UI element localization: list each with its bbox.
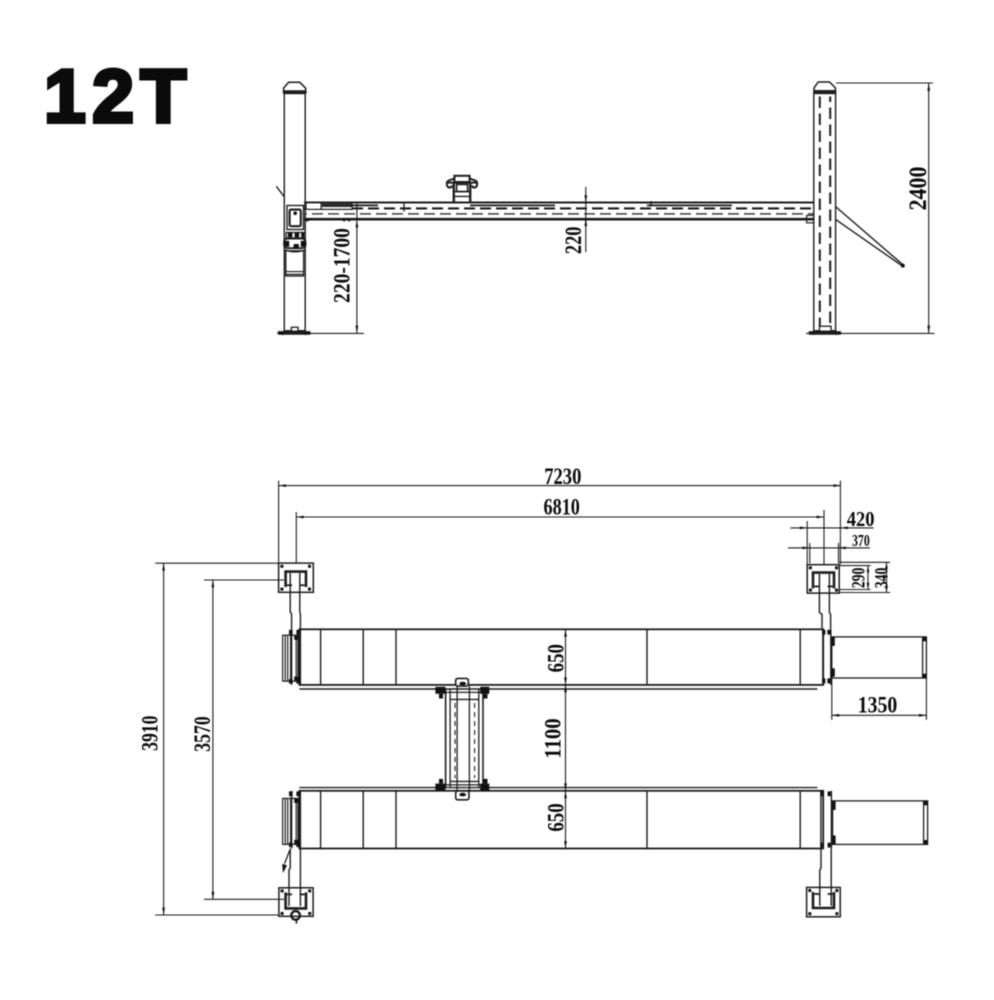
svg-text:3570: 3570 — [191, 716, 216, 751]
svg-text:420: 420 — [847, 508, 875, 531]
svg-text:370: 370 — [852, 532, 870, 550]
svg-text:1100: 1100 — [541, 718, 566, 758]
svg-text:3910: 3910 — [138, 715, 163, 750]
svg-text:2400: 2400 — [904, 167, 932, 211]
svg-text:290: 290 — [849, 568, 869, 589]
svg-text:650: 650 — [543, 644, 569, 672]
svg-text:220: 220 — [560, 227, 587, 255]
svg-text:12T: 12T — [44, 54, 193, 138]
svg-text:340: 340 — [871, 568, 891, 589]
svg-text:1350: 1350 — [858, 692, 898, 718]
svg-text:7230: 7230 — [544, 463, 581, 489]
svg-text:650: 650 — [543, 803, 569, 831]
svg-text:220-1700: 220-1700 — [329, 228, 355, 303]
svg-text:6810: 6810 — [544, 496, 580, 520]
